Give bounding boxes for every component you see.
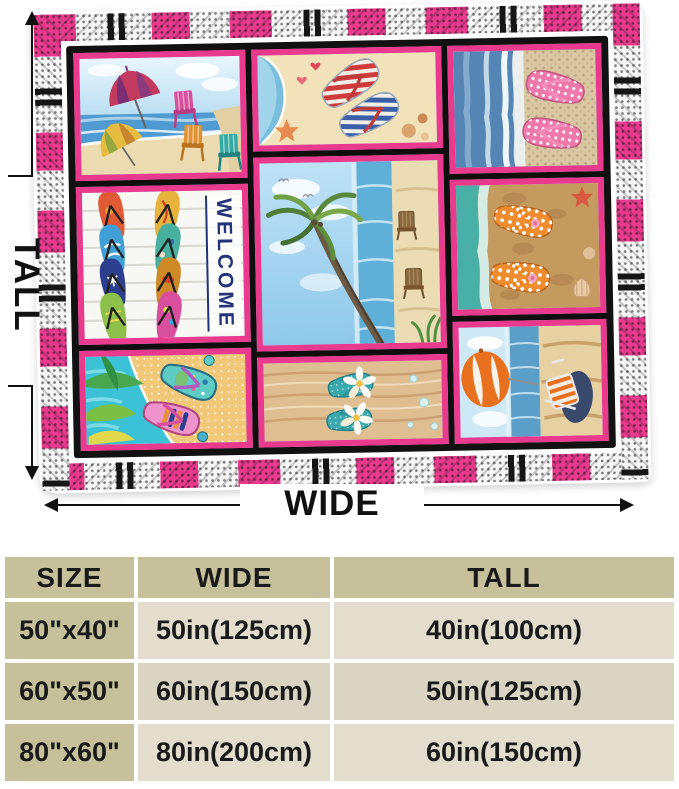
tall-arrow-line-lower xyxy=(31,386,33,466)
column-header-tall: TALL xyxy=(334,557,674,598)
size-cell: 80"x60" xyxy=(5,724,134,781)
tall-arrow-tick-lower xyxy=(8,385,33,387)
size-table-body: 50"x40" 50in(125cm) 40in(100cm) 60"x50" … xyxy=(5,602,674,781)
palm-tree-illustration xyxy=(259,160,440,345)
striped-flip-flops-illustration xyxy=(257,52,437,145)
tall-cell: 60in(150cm) xyxy=(334,724,674,781)
tropical-flip-flops-illustration xyxy=(85,354,247,445)
wide-arrowhead-left xyxy=(44,498,58,512)
wide-dimension-label: WIDE xyxy=(240,484,424,524)
size-cell: 60"x50" xyxy=(5,663,134,720)
pink-flip-flops-illustration xyxy=(453,49,597,168)
wide-cell: 80in(200cm) xyxy=(138,724,330,781)
table-row: 50"x40" 50in(125cm) 40in(100cm) xyxy=(5,602,674,659)
size-chart-table: SIZE WIDE TALL 50"x40" 50in(125cm) 40in(… xyxy=(5,557,674,785)
tall-cell: 40in(100cm) xyxy=(334,602,674,659)
beach-umbrellas-illustration xyxy=(79,56,241,175)
product-size-diagram: WELCOME xyxy=(0,0,679,789)
wide-arrowhead-right xyxy=(620,498,634,512)
tall-dimension-label: TALL xyxy=(0,200,52,370)
welcome-sign: WELCOME xyxy=(205,195,243,332)
table-row: 80"x60" 80in(200cm) 60in(150cm) xyxy=(5,724,674,781)
panel-welcome-flip-flop-board: WELCOME xyxy=(76,184,251,345)
column-header-wide: WIDE xyxy=(138,557,330,598)
tall-arrowhead-down xyxy=(25,466,39,480)
tall-cell: 50in(125cm) xyxy=(334,663,674,720)
panel-beach-umbrella-lounge-chair xyxy=(452,319,608,444)
table-row: 60"x50" 60in(150cm) 50in(125cm) xyxy=(5,663,674,720)
umbrella-lounge-chair-illustration xyxy=(459,325,603,438)
size-cell: 50"x40" xyxy=(5,602,134,659)
flip-flop-beach-blanket: WELCOME xyxy=(30,0,651,494)
shell xyxy=(198,432,208,442)
column-header-size: SIZE xyxy=(5,557,134,598)
wide-cell: 60in(150cm) xyxy=(138,663,330,720)
panel-palm-tree-beach xyxy=(253,154,447,352)
tall-arrowhead-up xyxy=(25,11,39,25)
wide-arrow-line-left xyxy=(58,504,240,506)
panel-striped-flip-flops xyxy=(251,46,443,152)
tall-arrow-line-upper xyxy=(31,24,33,176)
welcome-text: WELCOME xyxy=(213,198,237,329)
panel-orange-polka-dot-flip-flops xyxy=(450,177,607,316)
wide-arrow-line-right xyxy=(424,504,620,506)
wide-cell: 50in(125cm) xyxy=(138,602,330,659)
shell xyxy=(204,355,214,365)
panel-tropical-flip-flops xyxy=(79,348,253,451)
size-table-header-row: SIZE WIDE TALL xyxy=(5,557,674,598)
blanket-panel-grid: WELCOME xyxy=(73,43,609,451)
panel-beach-umbrellas-and-chairs xyxy=(73,50,247,181)
plumeria-flip-flops-illustration xyxy=(263,360,442,441)
orange-flip-flops-illustration xyxy=(456,183,600,310)
tall-arrow-tick-upper xyxy=(8,175,33,177)
panel-teal-plumeria-flip-flops xyxy=(257,354,449,448)
panel-pink-polka-dot-flip-flops xyxy=(447,43,603,174)
